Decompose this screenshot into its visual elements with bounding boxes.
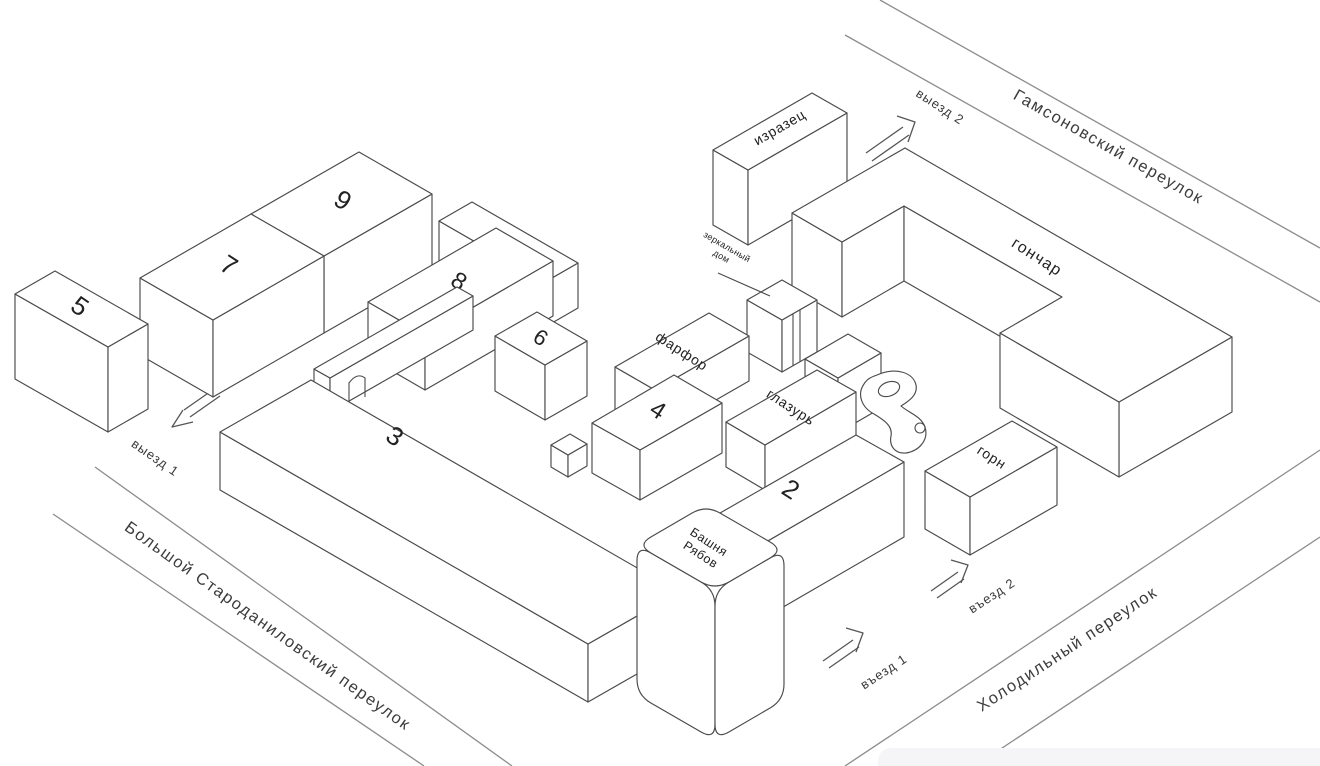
building-7[interactable]: 7 bbox=[140, 214, 324, 397]
arrow-shaft bbox=[931, 572, 958, 591]
arrow-shaft bbox=[866, 127, 903, 153]
arrow-shaft bbox=[190, 396, 220, 417]
building-tower-ryabov[interactable]: Башня Рябов bbox=[637, 509, 784, 735]
courtyard-sculpture bbox=[861, 371, 926, 453]
gate-entry-1: въезд 1 bbox=[823, 628, 910, 692]
building-gorn[interactable]: горн bbox=[925, 421, 1057, 555]
arrow-shaft bbox=[823, 640, 853, 661]
arrow-head-ne-icon bbox=[846, 628, 863, 652]
arrow-head-sw-icon bbox=[172, 410, 193, 427]
gate-label-exit-1: выезд 1 bbox=[129, 436, 182, 479]
content-card bbox=[878, 748, 1320, 766]
arrow-shaft bbox=[937, 579, 964, 598]
organic-shape bbox=[861, 371, 926, 453]
gate-exit-2: выезд 2 bbox=[866, 86, 967, 161]
street-edge bbox=[845, 450, 1320, 766]
label-leader-line bbox=[718, 273, 770, 296]
arrow-head-ne-icon bbox=[951, 560, 968, 583]
gate-entry-2: въезд 2 bbox=[931, 560, 1018, 616]
street-kholodilny: Холодильный переулок bbox=[845, 450, 1320, 766]
site-map-page: Гамсоновский переулок Большой Староданил… bbox=[0, 0, 1320, 766]
site-map: Гамсоновский переулок Большой Староданил… bbox=[0, 0, 1320, 766]
building-4[interactable]: 4 bbox=[592, 375, 722, 500]
gate-label-entry-1: въезд 1 bbox=[858, 651, 910, 692]
street-label-kholodilny: Холодильный переулок bbox=[974, 583, 1161, 715]
arrow-shaft bbox=[829, 647, 859, 668]
gate-label-exit-2: выезд 2 bbox=[913, 86, 967, 128]
street-edge bbox=[975, 537, 1320, 766]
street-label-gamsonovsky: Гамсоновский переулок bbox=[1010, 86, 1206, 208]
building-6[interactable]: 6 bbox=[495, 312, 587, 420]
gate-label-entry-2: въезд 2 bbox=[966, 575, 1018, 616]
building-5[interactable]: 5 bbox=[15, 271, 148, 432]
courtyard-kiosk bbox=[551, 434, 587, 477]
